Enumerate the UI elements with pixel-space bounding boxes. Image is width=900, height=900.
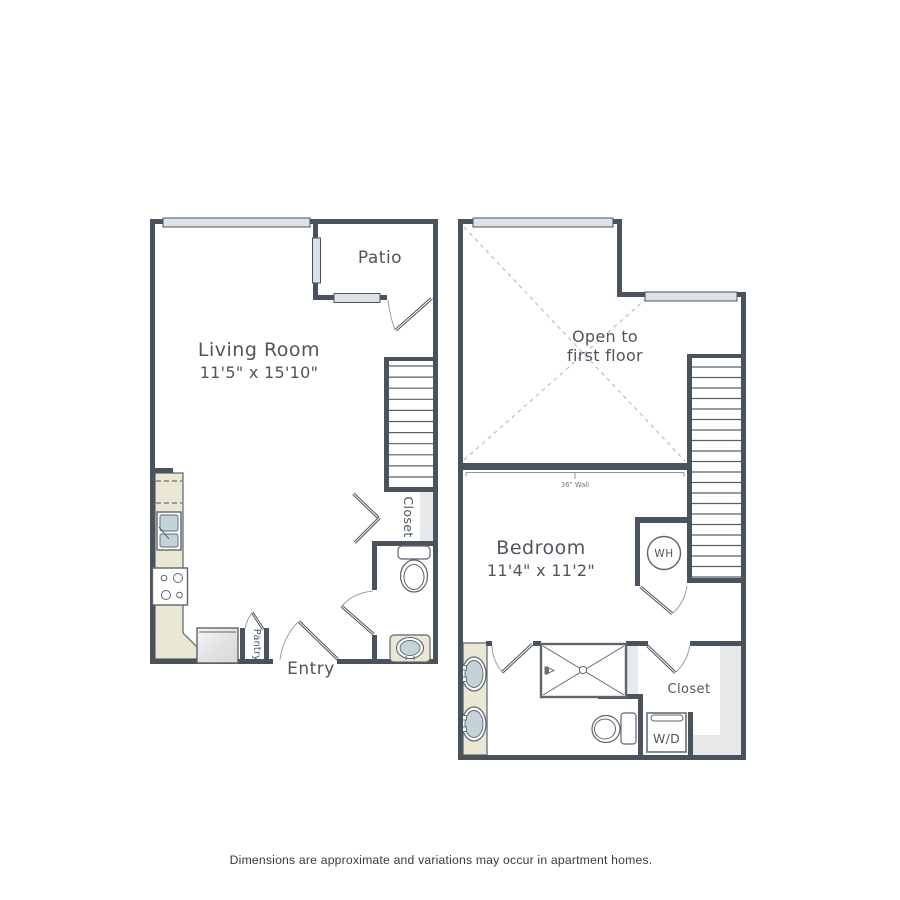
floor1-windows <box>163 218 380 303</box>
bedroom-label: Bedroom <box>496 537 585 559</box>
entry-label: Entry <box>287 659 335 679</box>
floor1-plan: Living Room 11'5" x 15'10" Patio Entry C… <box>150 218 438 679</box>
door-swing-arc <box>388 300 395 330</box>
toilet <box>592 713 636 744</box>
bathroom-sink <box>390 635 430 662</box>
stairs-floor2 <box>692 367 741 577</box>
floor-plan-page: Living Room 11'5" x 15'10" Patio Entry C… <box>0 0 900 900</box>
stairs-floor1 <box>389 366 433 477</box>
window <box>163 218 310 227</box>
window <box>645 292 737 301</box>
door-swing-arc <box>341 591 373 607</box>
door-swing-arc <box>280 622 298 660</box>
window <box>313 238 321 283</box>
closet-shelf <box>693 735 741 755</box>
refrigerator <box>197 628 238 663</box>
patio-label: Patio <box>358 248 402 268</box>
disclaimer-text: Dimensions are approximate and variation… <box>230 853 653 867</box>
floor2-windows <box>473 218 737 301</box>
closet-label-floor2: Closet <box>668 682 711 697</box>
water-heater-label: WH <box>654 548 673 560</box>
double-vanity <box>462 643 487 755</box>
water-heater: WH <box>648 537 681 570</box>
kitchen-counter <box>155 473 197 659</box>
window <box>473 218 613 227</box>
linen-niche <box>627 645 638 694</box>
floor2-plan: 36" Wall <box>458 218 746 760</box>
washer-dryer: W/D <box>647 713 686 752</box>
living-room-label: Living Room <box>198 339 320 361</box>
floor-plan-drawing: Living Room 11'5" x 15'10" Patio Entry C… <box>0 0 900 900</box>
window <box>334 294 380 303</box>
door-swing-arc <box>676 645 690 672</box>
toilet <box>398 546 430 592</box>
open-to-first-floor-line1: Open to <box>572 327 638 346</box>
closet-shelf <box>420 492 433 541</box>
shower <box>541 644 626 697</box>
closet-label-floor1: Closet <box>401 496 416 537</box>
wall-note-label: 36" Wall <box>561 481 589 489</box>
pantry-label: Pantry <box>251 629 262 661</box>
bedroom-dims: 11'4" x 11'2" <box>487 561 595 580</box>
washer-dryer-label: W/D <box>653 731 680 746</box>
open-to-first-floor-line2: first floor <box>567 346 643 365</box>
door-swing-arc <box>492 646 503 673</box>
wall-height-bracket <box>466 473 684 480</box>
door-swing-arc <box>673 586 687 613</box>
floor1-walls <box>150 219 438 664</box>
door-swing-arc <box>245 612 253 629</box>
living-room-dims: 11'5" x 15'10" <box>200 363 319 382</box>
kitchen-sink <box>157 512 181 550</box>
stove <box>153 568 188 605</box>
